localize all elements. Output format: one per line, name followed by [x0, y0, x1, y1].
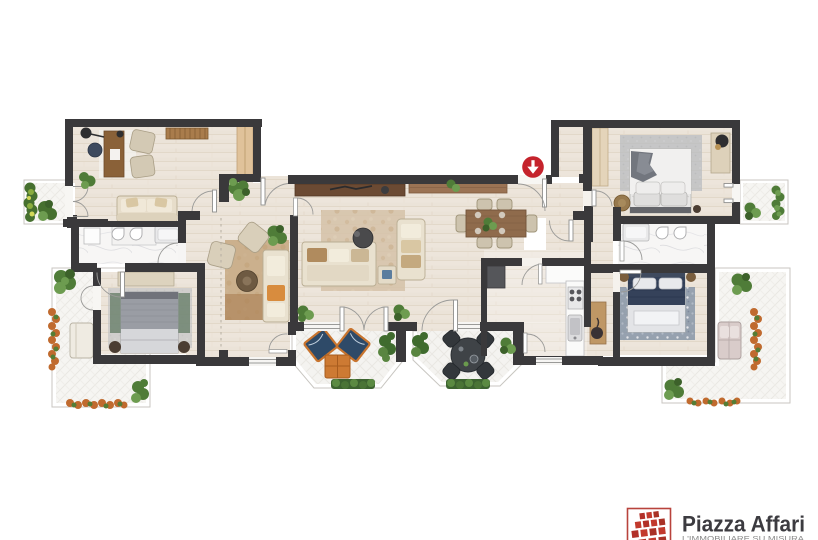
svg-text:L'IMMOBILIARE SU MISURA: L'IMMOBILIARE SU MISURA [682, 534, 805, 540]
svg-text:Piazza Affari: Piazza Affari [682, 512, 805, 537]
